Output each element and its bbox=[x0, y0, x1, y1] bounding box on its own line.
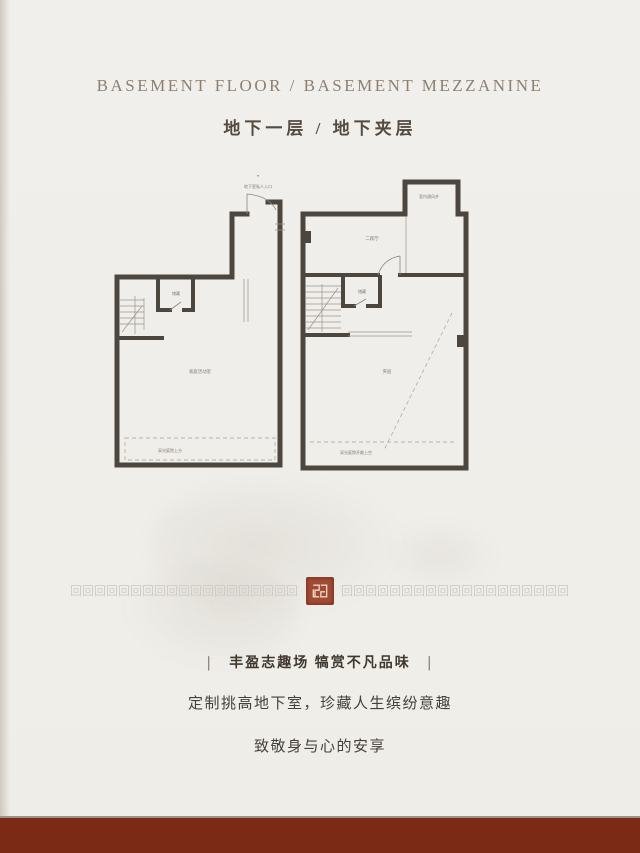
storage-label: 储藏 bbox=[358, 288, 366, 294]
tagline-line3: 致敬身与心的安享 bbox=[0, 735, 640, 756]
tagline-block: 丨 丰盈志趣场 犒赏不凡品味 丨 定制挑高地下室，珍藏人生缤纷意趣 致敬身与心的… bbox=[0, 652, 640, 756]
courtyard-dashed-zone bbox=[125, 438, 275, 460]
footer-bar bbox=[0, 818, 640, 853]
tagline-headline: 丨 丰盈志趣场 犒赏不凡品味 丨 bbox=[0, 652, 640, 672]
courtyard-label: 采光庭院上方 bbox=[158, 447, 182, 453]
entrance-marker: ▾ bbox=[257, 174, 259, 178]
entrance-door-arc bbox=[247, 194, 276, 214]
floorplan-basement-floor: ▾ 地下室私人入口 储藏 家庭活动室 采光庭院上方 bbox=[108, 172, 288, 472]
headline-bar-right: 丨 bbox=[423, 651, 438, 674]
hall-label: 二跃厅 bbox=[365, 235, 379, 242]
wall-pier-left bbox=[303, 231, 311, 243]
storage-label: 储藏 bbox=[172, 290, 180, 296]
meander-pattern-left: 回回回回回回回回回回回回回回回回回回回回回回回回回回回回回回回回回回回回回回回回 bbox=[70, 585, 299, 598]
staircase bbox=[305, 284, 341, 332]
activity-room-label: 家庭活动室 bbox=[189, 368, 212, 375]
wall-pier-right bbox=[457, 335, 466, 347]
entrance-label: 地下室私人入口 bbox=[244, 183, 272, 189]
tagline-line2: 定制挑高地下室，珍藏人生缤纷意趣 bbox=[0, 692, 640, 713]
shaft-lines bbox=[244, 279, 248, 322]
storage-door bbox=[170, 302, 181, 310]
headline-text: 丰盈志趣场 犒赏不凡品味 bbox=[229, 652, 411, 672]
staircase bbox=[120, 296, 144, 334]
headline-bar-left: 丨 bbox=[202, 651, 217, 674]
storage-door bbox=[354, 299, 366, 306]
brand-seal bbox=[306, 577, 334, 605]
courtyard-label: 采光庭院开敞上空 bbox=[340, 449, 372, 455]
mid-door-arc bbox=[378, 256, 400, 275]
vent-room-label: 室内通风井 bbox=[419, 193, 439, 199]
title-english: BASEMENT FLOOR / BASEMENT MEZZANINE bbox=[0, 76, 640, 96]
outer-walls bbox=[117, 202, 280, 465]
seal-emblem bbox=[310, 581, 330, 601]
title-chinese: 地下一层 / 地下夹层 bbox=[0, 114, 640, 139]
mezzanine-label: 夹层 bbox=[383, 368, 392, 375]
floorplan-basement-mezzanine: 室内通风井 二跃厅 储藏 夹层 采光庭院开敞上空 bbox=[294, 168, 476, 473]
ornament-divider: 回回回回回回回回回回回回回回回回回回回回回回回回回回回回回回回回回回回回回回回回… bbox=[70, 578, 570, 604]
poster-page: BASEMENT FLOOR / BASEMENT MEZZANINE 地下一层… bbox=[0, 0, 640, 853]
meander-pattern-right: 回回回回回回回回回回回回回回回回回回回回回回回回回回回回回回回回回回回回回回回回 bbox=[341, 585, 570, 598]
outer-walls bbox=[303, 182, 466, 468]
